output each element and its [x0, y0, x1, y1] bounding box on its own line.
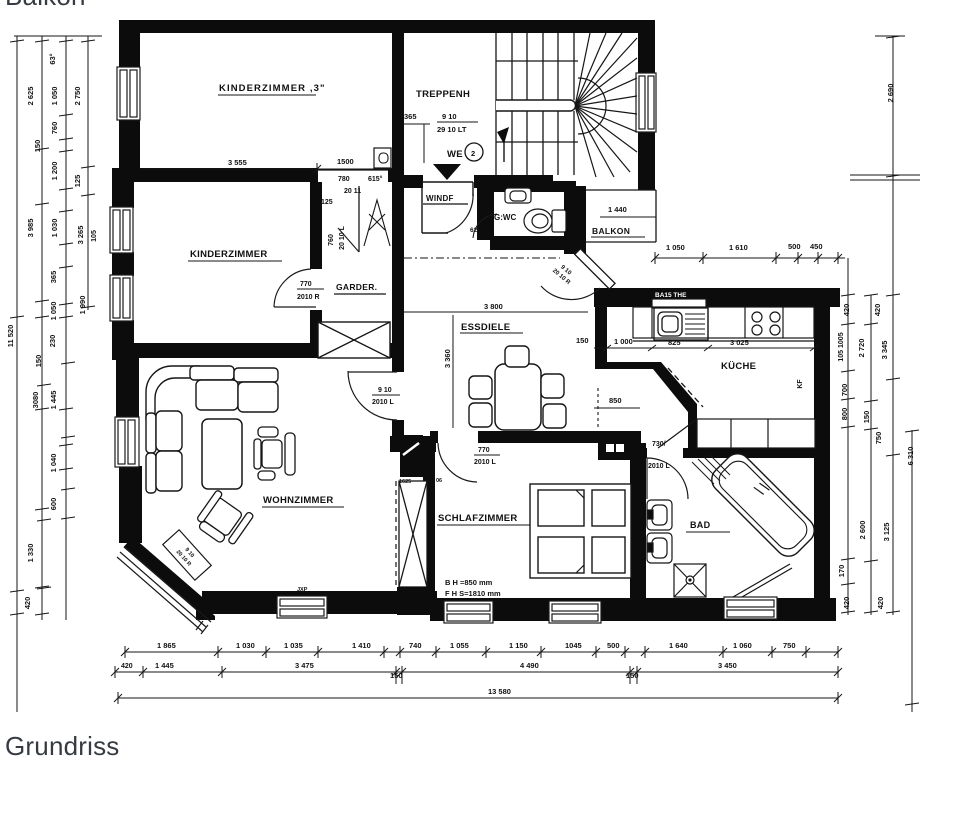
- svg-text:760: 760: [50, 122, 59, 135]
- svg-text:3 450: 3 450: [718, 661, 737, 670]
- svg-text:105 1005: 105 1005: [838, 332, 845, 361]
- svg-text:G:WC: G:WC: [494, 213, 516, 222]
- svg-text:WINDF: WINDF: [426, 194, 454, 203]
- svg-text:2010 L: 2010 L: [648, 463, 671, 470]
- svg-text:1 040: 1 040: [49, 454, 58, 473]
- svg-text:62t: 62t: [470, 227, 480, 234]
- svg-text:3 025: 3 025: [730, 338, 749, 347]
- svg-text:3080: 3080: [31, 392, 40, 409]
- svg-text:150: 150: [862, 411, 871, 424]
- svg-text:365: 365: [404, 112, 417, 121]
- svg-text:1 030: 1 030: [236, 641, 255, 650]
- svg-text:KINDERZIMMER ,3": KINDERZIMMER ,3": [219, 83, 326, 94]
- svg-text:1 050: 1 050: [49, 302, 58, 321]
- svg-text:9 10: 9 10: [442, 112, 457, 121]
- svg-text:20 10 L: 20 10 L: [339, 225, 346, 249]
- svg-text:2 720: 2 720: [857, 339, 866, 358]
- svg-text:1 060: 1 060: [733, 641, 752, 650]
- svg-text:230: 230: [48, 335, 57, 348]
- svg-text:2 750: 2 750: [73, 87, 82, 106]
- svg-text:1625: 1625: [399, 479, 411, 485]
- svg-text:1 000: 1 000: [614, 337, 633, 346]
- svg-text:2: 2: [471, 149, 475, 158]
- svg-text:1 865: 1 865: [157, 641, 176, 650]
- svg-text:1 610: 1 610: [729, 243, 748, 252]
- svg-text:13 580: 13 580: [488, 687, 511, 696]
- svg-text:420: 420: [121, 663, 133, 670]
- svg-text:500: 500: [607, 641, 620, 650]
- svg-text:BA15 THE: BA15 THE: [655, 292, 687, 299]
- svg-text:1500: 1500: [337, 157, 354, 166]
- svg-text:750: 750: [874, 432, 883, 445]
- svg-text:600: 600: [49, 498, 58, 511]
- svg-text:1 050: 1 050: [666, 243, 685, 252]
- svg-text:20 11: 20 11: [344, 188, 361, 195]
- svg-text:3 125: 3 125: [882, 523, 891, 542]
- svg-text:770: 770: [478, 447, 490, 454]
- svg-text:SCHLAFZIMMER: SCHLAFZIMMER: [438, 513, 518, 524]
- svg-text:F H S=1810 mm: F H S=1810 mm: [445, 589, 501, 598]
- svg-text:750: 750: [783, 641, 796, 650]
- svg-text:2 600: 2 600: [858, 521, 867, 540]
- svg-text:420: 420: [842, 304, 851, 317]
- svg-text:730/: 730/: [652, 441, 666, 448]
- svg-text:1 330: 1 330: [26, 544, 35, 563]
- svg-text:9 10: 9 10: [378, 387, 392, 394]
- svg-text:GARDER.: GARDER.: [336, 282, 377, 292]
- svg-text:780: 780: [338, 176, 350, 183]
- svg-text:3 360: 3 360: [443, 349, 452, 368]
- svg-text:WOHNZIMMER: WOHNZIMMER: [263, 495, 334, 506]
- svg-text:1 445: 1 445: [49, 391, 58, 410]
- svg-text:615°: 615°: [368, 175, 383, 183]
- svg-text:06: 06: [436, 478, 442, 484]
- svg-text:11 520: 11 520: [6, 325, 15, 348]
- svg-text:800: 800: [840, 408, 849, 421]
- svg-text:2010 L: 2010 L: [474, 459, 497, 466]
- svg-text:150: 150: [576, 336, 589, 345]
- svg-text:1 990: 1 990: [78, 296, 87, 315]
- svg-text:BAD: BAD: [690, 520, 711, 530]
- svg-text:2 625: 2 625: [26, 87, 35, 106]
- svg-text:BALKON: BALKON: [592, 226, 630, 236]
- svg-text:450: 450: [810, 242, 823, 251]
- svg-text:B H =850 mm: B H =850 mm: [445, 578, 493, 587]
- svg-text:1 410: 1 410: [352, 641, 371, 650]
- svg-text:500: 500: [788, 242, 801, 251]
- svg-text:WE: WE: [447, 149, 463, 160]
- svg-text:3 345: 3 345: [880, 341, 889, 360]
- svg-text:740: 740: [409, 641, 422, 650]
- svg-text:TREPPENH: TREPPENH: [416, 89, 470, 100]
- svg-text:2 690: 2 690: [886, 84, 895, 103]
- svg-text:1 640: 1 640: [669, 641, 688, 650]
- svg-text:760: 760: [328, 234, 335, 246]
- svg-text:1 150: 1 150: [509, 641, 528, 650]
- svg-text:2010 L: 2010 L: [372, 399, 395, 406]
- svg-text:ESSDIELE: ESSDIELE: [461, 322, 510, 333]
- svg-text:770: 770: [300, 281, 312, 288]
- svg-text:KF: KF: [797, 379, 804, 389]
- svg-text:150: 150: [33, 140, 42, 153]
- svg-text:1045: 1045: [565, 641, 582, 650]
- svg-text:2010 R: 2010 R: [297, 294, 320, 301]
- svg-text:KINDERZIMMER: KINDERZIMMER: [190, 249, 268, 260]
- svg-text:365: 365: [49, 271, 58, 284]
- svg-text:3 475: 3 475: [295, 661, 314, 670]
- svg-text:3 265: 3 265: [76, 226, 85, 245]
- svg-text:6 310: 6 310: [906, 447, 915, 466]
- svg-text:1 030: 1 030: [50, 219, 59, 238]
- svg-text:JXP: JXP: [297, 587, 308, 593]
- svg-text:420: 420: [873, 304, 882, 317]
- svg-text:420: 420: [876, 597, 885, 610]
- svg-text:170: 170: [837, 565, 846, 578]
- svg-text:125: 125: [321, 199, 333, 206]
- svg-text:1 055: 1 055: [450, 641, 469, 650]
- svg-text:4 490: 4 490: [520, 661, 539, 670]
- svg-text:3 800: 3 800: [484, 302, 503, 311]
- svg-text:1 445: 1 445: [155, 661, 174, 670]
- svg-text:105: 105: [91, 230, 98, 242]
- svg-text:KÜCHE: KÜCHE: [721, 361, 756, 372]
- svg-text:1 050: 1 050: [50, 87, 59, 106]
- svg-text:3 985: 3 985: [26, 219, 35, 238]
- svg-text:420: 420: [23, 597, 32, 610]
- svg-text:150: 150: [34, 355, 43, 368]
- svg-text:825: 825: [668, 338, 681, 347]
- svg-text:1 200: 1 200: [50, 162, 59, 181]
- svg-text:3 555: 3 555: [228, 158, 247, 167]
- svg-text:1 035: 1 035: [284, 641, 303, 650]
- svg-text:1 440: 1 440: [608, 205, 627, 214]
- svg-text:700: 700: [840, 384, 849, 397]
- svg-text:29 10 LT: 29 10 LT: [437, 125, 467, 134]
- svg-text:63°: 63°: [48, 53, 57, 64]
- svg-text:125: 125: [73, 175, 82, 188]
- svg-text:850: 850: [609, 396, 622, 405]
- svg-text:420: 420: [842, 597, 851, 610]
